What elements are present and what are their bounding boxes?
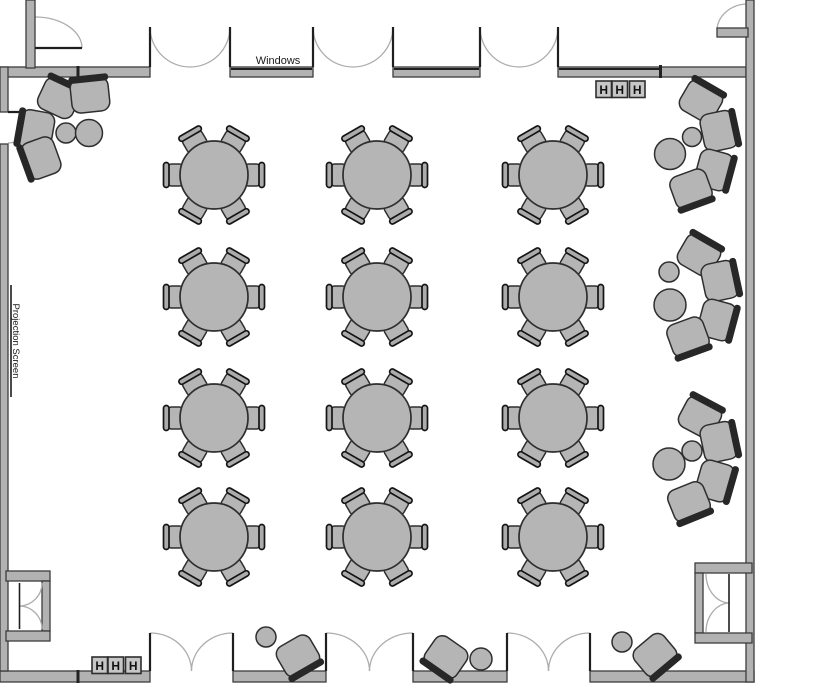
door-swing-arc	[549, 633, 591, 671]
side-table	[76, 120, 103, 147]
banquet-table	[519, 141, 587, 209]
door-swing-arc	[717, 4, 746, 30]
heater-letter: H	[633, 83, 642, 97]
chair-back	[598, 285, 604, 310]
chair-back	[327, 525, 333, 550]
side-table	[683, 128, 702, 147]
chair-back	[259, 285, 265, 310]
furniture-layer	[13, 71, 744, 684]
heater-letter: H	[129, 659, 138, 673]
wall-bottom	[413, 671, 507, 682]
banquet-table-group	[503, 368, 604, 468]
door-swing-arc	[480, 27, 519, 67]
chair-back	[259, 525, 265, 550]
lounge-chair	[698, 418, 743, 465]
banquet-table-group	[164, 368, 265, 468]
floor-plan-drawing: HHHHHH Windows Projection Screen	[0, 0, 840, 700]
wall-bottom	[233, 671, 326, 682]
banquet-table-group	[327, 247, 428, 347]
lounge-chair	[68, 73, 112, 114]
chair-back	[422, 285, 428, 310]
chair-back	[327, 163, 333, 188]
chair-back	[164, 525, 170, 550]
chair-back	[422, 525, 428, 550]
banquet-table	[519, 263, 587, 331]
chair-back	[259, 406, 265, 431]
door-swing-arc	[313, 27, 353, 67]
door-swing-arc	[519, 27, 558, 67]
lounge-cluster-right-upper	[655, 74, 743, 215]
door-swing-arc	[353, 27, 393, 67]
chair-back	[164, 285, 170, 310]
chair-back	[503, 163, 509, 188]
wall-left	[0, 67, 8, 112]
door-swing-arc	[370, 633, 414, 671]
banquet-table-group	[503, 125, 604, 225]
lounge-cluster-right-middle	[654, 228, 744, 363]
wall-joint	[659, 65, 662, 78]
banquet-table	[519, 503, 587, 571]
heater-marker-group: HHH	[596, 81, 645, 98]
chair-back	[598, 163, 604, 188]
banquet-table-group	[503, 487, 604, 587]
heater-letter: H	[599, 83, 608, 97]
side-table	[682, 441, 702, 461]
door-swing-arc	[150, 633, 192, 671]
chair-back	[598, 525, 604, 550]
chair-back	[503, 285, 509, 310]
vestibule-wall	[6, 631, 50, 641]
vestibule-wall	[42, 581, 50, 631]
door-swing-arc	[507, 633, 549, 671]
chair-back	[164, 406, 170, 431]
wall-top	[0, 67, 150, 77]
banquet-table	[343, 384, 411, 452]
chair-back	[422, 163, 428, 188]
side-table	[56, 123, 76, 143]
wall-left	[0, 144, 8, 671]
banquet-table	[180, 384, 248, 452]
wall-joint	[77, 670, 80, 683]
vestibule-wall	[6, 571, 50, 581]
floor-plan-page: HHHHHH Windows Projection Screen	[0, 0, 840, 700]
vestibule-wall	[695, 563, 752, 573]
banquet-table-group	[327, 125, 428, 225]
lounge-cluster-right-lower	[653, 390, 743, 528]
banquet-table	[343, 263, 411, 331]
banquet-table	[343, 503, 411, 571]
chair-back	[598, 406, 604, 431]
banquet-table	[180, 503, 248, 571]
banquet-table-group	[327, 487, 428, 587]
side-table	[655, 139, 686, 170]
heater-letter: H	[615, 83, 624, 97]
banquet-table	[519, 384, 587, 452]
banquet-table	[343, 141, 411, 209]
banquet-table-group	[164, 487, 265, 587]
projection-screen-label: Projection Screen	[10, 304, 21, 379]
banquet-table	[180, 141, 248, 209]
chair-back	[503, 406, 509, 431]
door-swing-arc	[706, 603, 729, 632]
lounge-chair	[699, 257, 744, 304]
heater-letter: H	[111, 659, 120, 673]
banquet-table	[180, 263, 248, 331]
wall-bottom	[590, 671, 754, 682]
door-swing-arc	[20, 606, 43, 629]
chair-back	[503, 525, 509, 550]
door-swing-arc	[192, 633, 234, 671]
banquet-table-group	[164, 125, 265, 225]
chair-back	[327, 285, 333, 310]
banquet-table-group	[164, 247, 265, 347]
door-swing-arc	[706, 574, 729, 603]
walls-layer	[0, 0, 754, 683]
side-table	[653, 448, 685, 480]
vestibule-wall	[695, 633, 752, 643]
side-table	[612, 632, 632, 652]
banquet-table-group	[327, 368, 428, 468]
chair-back	[164, 163, 170, 188]
side-table	[654, 289, 686, 321]
heater-marker-group: HHH	[92, 657, 141, 674]
banquet-table-group	[503, 247, 604, 347]
lounge-cluster-corner-top-left	[13, 71, 112, 183]
door-swing-arc	[150, 27, 190, 67]
door-leaf	[717, 28, 748, 37]
wall-right	[746, 0, 754, 682]
door-swing-arc	[20, 583, 43, 606]
heater-letter: H	[95, 659, 104, 673]
side-table	[659, 262, 679, 282]
vestibule-wall	[695, 573, 703, 633]
wall-entry-bar	[26, 0, 35, 68]
chair-back	[327, 406, 333, 431]
chair-back	[422, 406, 428, 431]
chair-back	[259, 163, 265, 188]
door-swing-arc	[35, 17, 82, 48]
side-table	[256, 627, 276, 647]
door-swing-arc	[190, 27, 230, 67]
door-swing-arc	[326, 633, 370, 671]
lounge-chair	[698, 107, 743, 154]
windows-label: Windows	[256, 55, 301, 67]
side-table	[470, 648, 492, 670]
